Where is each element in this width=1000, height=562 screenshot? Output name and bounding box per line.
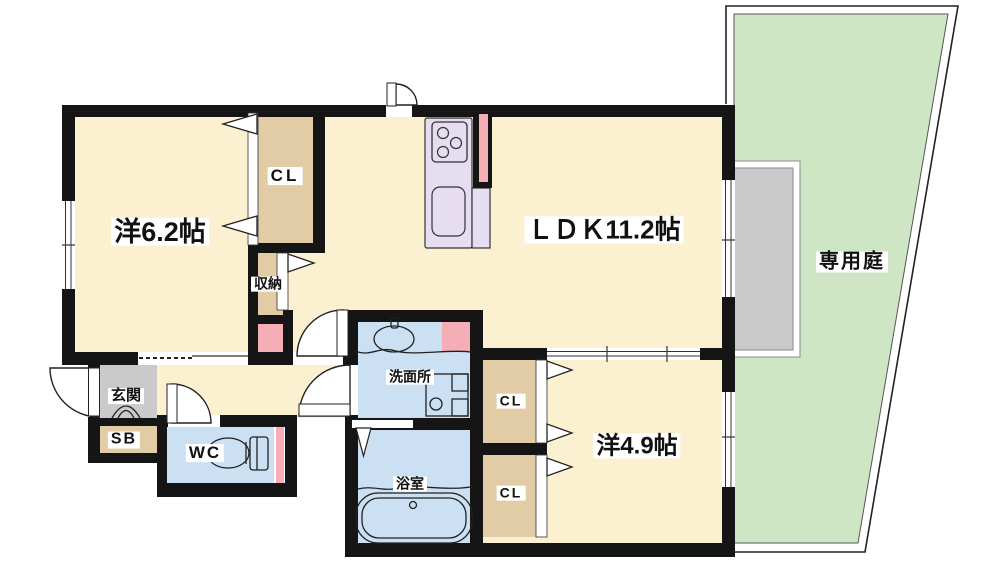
entrance-door-leaf — [89, 368, 100, 416]
wall-segment — [345, 543, 735, 557]
room-label-genkan: 玄関 — [108, 388, 144, 404]
garden-area — [726, 6, 958, 552]
wall-segment — [470, 348, 547, 360]
wc-door-leaf — [167, 384, 177, 423]
terrace-deck — [734, 168, 793, 350]
room-label-garden: 専用庭 — [816, 252, 888, 273]
pipe-shaft — [258, 323, 283, 352]
wall-segment — [722, 105, 735, 557]
room-label-wc: WC — [186, 444, 224, 462]
bathroom-doorway — [352, 420, 413, 428]
back-door-opening — [386, 105, 412, 117]
sliding-door-ldk-west2 — [547, 348, 700, 360]
room-label-washroom: 洗面所 — [386, 370, 434, 385]
room-label-ldk: ＬＤＫ11.2帖 — [524, 216, 683, 243]
pipe-shaft — [442, 322, 470, 352]
back-door-swing — [396, 84, 417, 105]
wall-segment — [100, 418, 157, 426]
room-label-western1: 洋6.2帖 — [111, 218, 209, 246]
wall-segment — [258, 315, 283, 324]
room-label-closet-north: CL — [268, 167, 303, 185]
pipe-shaft — [479, 114, 488, 182]
wall-segment — [88, 453, 165, 463]
window-east — [722, 392, 735, 487]
ldk-door-leaf — [337, 310, 348, 356]
kitchen-counter-extension — [472, 188, 490, 248]
floor-plan: 洋6.2帖 CL 収納 ＬＤＫ11.2帖 専用庭 玄関 SB WC 洗面所 浴室… — [0, 0, 1000, 562]
closet-east-lower-door-panel — [536, 455, 547, 537]
room-label-storage: 収納 — [251, 277, 285, 292]
room-label-shoebox: SB — [108, 432, 140, 449]
room-label-closet-east-upper: CL — [497, 394, 526, 409]
pipe-shaft — [276, 427, 284, 483]
wall-segment — [157, 483, 297, 497]
floor-plan-drawing — [0, 0, 1000, 562]
room-label-closet-east-lower: CL — [497, 486, 526, 501]
closet-east-upper-door-panel — [536, 360, 547, 443]
wall-segment — [345, 310, 480, 322]
washroom-door-leaf — [299, 404, 350, 416]
wall-segment — [470, 443, 547, 455]
wall-segment — [248, 243, 325, 253]
wall-segment — [313, 105, 325, 253]
window-terrace — [722, 180, 735, 297]
back-door-leaf — [387, 83, 396, 106]
room-label-bathroom: 浴室 — [393, 477, 427, 492]
sliding-door-room1 — [192, 352, 248, 365]
room-label-western2: 洋4.9帖 — [593, 433, 680, 458]
